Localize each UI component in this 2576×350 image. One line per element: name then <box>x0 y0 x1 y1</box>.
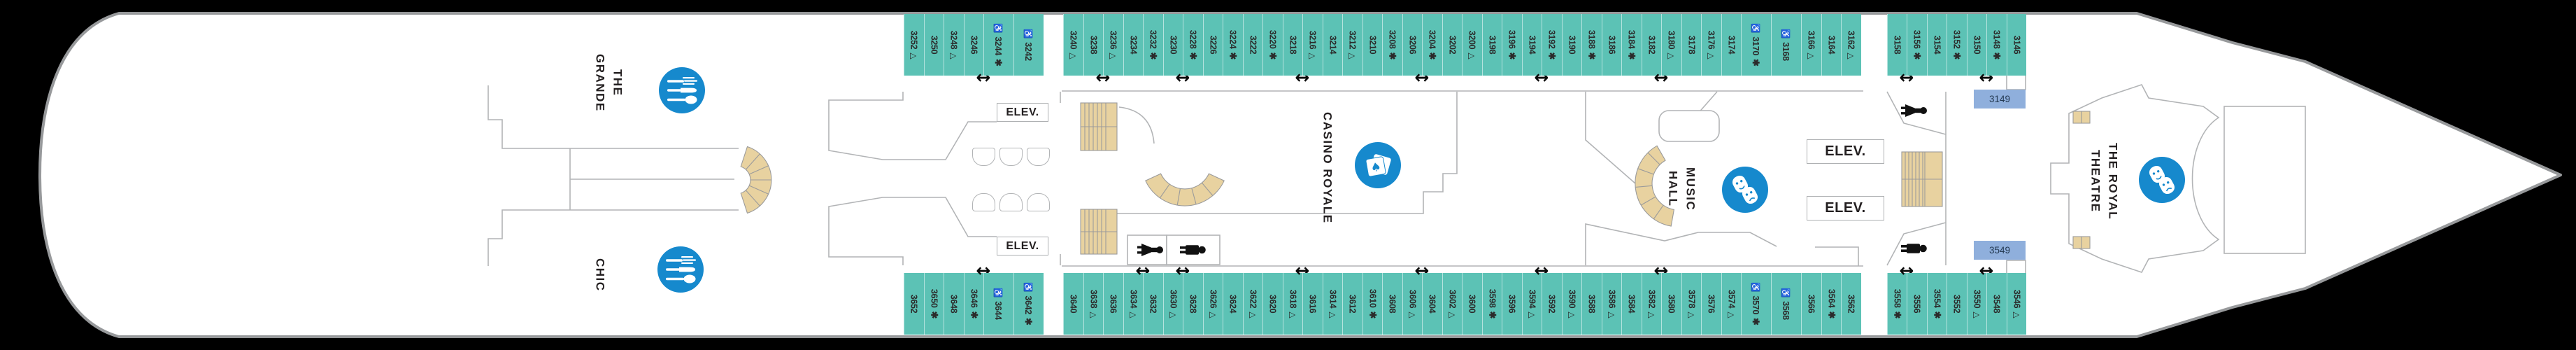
cabin-3214[interactable]: 3214 <box>1323 14 1343 76</box>
star-marker: ✱ <box>1931 311 1942 319</box>
cabin-3550[interactable]: 3550△ <box>1967 273 1987 335</box>
cabin-number: 3552 <box>1951 295 1961 314</box>
cabin-3190[interactable]: 3190 <box>1562 14 1582 76</box>
cabin-3174[interactable]: 3174 <box>1721 14 1742 76</box>
cabin-number: 3156 <box>1912 30 1921 49</box>
triangle-marker: △ <box>1527 311 1537 318</box>
cabin-3232[interactable]: 3232✱ <box>1143 14 1163 76</box>
cabin-3210[interactable]: 3210 <box>1362 14 1383 76</box>
cabin-3226[interactable]: 3226 <box>1203 14 1223 76</box>
cabin-3184[interactable]: 3184✱ <box>1621 14 1642 76</box>
cabin-3220[interactable]: 3220✱ <box>1262 14 1283 76</box>
cabin-3168[interactable]: ♿3168 <box>1771 14 1801 76</box>
cabin-number: 3170 <box>1751 36 1761 55</box>
cabin-number: 3158 <box>1892 36 1902 55</box>
triangle-marker: △ <box>2012 311 2021 318</box>
cabin-3216[interactable]: 3216△ <box>1302 14 1323 76</box>
cabin-number: 3606 <box>1407 290 1417 309</box>
cabin-3192[interactable]: 3192✱ <box>1542 14 1562 76</box>
cabin-3240[interactable]: 3240△ <box>1063 14 1083 76</box>
triangle-marker: △ <box>948 52 958 59</box>
cabin-number: 3632 <box>1148 295 1158 314</box>
wheelchair-accessible-icon: ♿ <box>1781 288 1791 297</box>
cabin-3614[interactable]: 3614△ <box>1323 273 1343 335</box>
cabin-3648[interactable]: 3648 <box>944 273 964 335</box>
cabin-number: 3618 <box>1288 290 1297 309</box>
cabin-number: 3626 <box>1208 290 1218 309</box>
triangle-marker: △ <box>1307 52 1317 59</box>
cabin-3570[interactable]: ♿3570✱ <box>1741 273 1771 335</box>
star-marker: ✱ <box>1386 52 1397 60</box>
triangle-marker: △ <box>1068 52 1078 59</box>
cabin-3154[interactable]: 3154 <box>1927 14 1947 76</box>
triangle-marker: △ <box>1806 52 1816 59</box>
cabin-3200[interactable]: 3200△ <box>1462 14 1482 76</box>
deck-plan: ♠ THE GRANDE CHIC CASINO ROYALE MUSIC HA… <box>0 0 2576 350</box>
wheelchair-accessible-icon: ♿ <box>1751 23 1761 33</box>
cabin-3608[interactable]: 3608 <box>1382 273 1402 335</box>
cabin-3612[interactable]: 3612 <box>1342 273 1362 335</box>
cabin-number: 3252 <box>909 31 918 50</box>
cabin-3558[interactable]: 3558✱ <box>1887 273 1907 335</box>
cabin-3586[interactable]: 3586△ <box>1602 273 1622 335</box>
cabin-number: 3190 <box>1567 36 1577 55</box>
cabin-number: 3204 <box>1427 30 1437 49</box>
cabin-3646[interactable]: 3646✱ <box>964 273 984 335</box>
cabin-number: 3648 <box>948 295 958 314</box>
cabin-3592[interactable]: 3592 <box>1542 273 1562 335</box>
cabin-number: 3236 <box>1108 31 1118 50</box>
triangle-marker: △ <box>1666 52 1676 59</box>
cabin-3602[interactable]: 3602△ <box>1442 273 1463 335</box>
cabin-number: 3226 <box>1208 36 1218 55</box>
star-marker: ✱ <box>1911 52 1922 60</box>
cabin-3566[interactable]: 3566 <box>1801 273 1821 335</box>
cabin-3248[interactable]: 3248△ <box>944 14 964 76</box>
cabin-number: 3248 <box>948 31 958 50</box>
cabin-number: 3234 <box>1128 36 1138 55</box>
cabin-number: 3162 <box>1846 31 1856 50</box>
cabin-number: 3176 <box>1706 31 1716 50</box>
cabin-number: 3240 <box>1068 31 1078 50</box>
cabin-number: 3216 <box>1307 31 1317 50</box>
wheelchair-accessible-icon: ♿ <box>1751 282 1761 292</box>
cabin-number: 3578 <box>1686 290 1696 309</box>
cabin-number: 3570 <box>1751 295 1761 314</box>
cabin-number: 3148 <box>1991 30 2001 49</box>
triangle-marker: △ <box>1972 311 1981 318</box>
cabin-number: 3622 <box>1248 290 1258 309</box>
cabin-number: 3150 <box>1972 36 1981 55</box>
triangle-marker: △ <box>1407 311 1417 318</box>
cabin-3624[interactable]: 3624 <box>1223 273 1243 335</box>
triangle-marker: △ <box>1686 311 1696 318</box>
cabin-3616[interactable]: 3616 <box>1302 273 1323 335</box>
cabin-3618[interactable]: 3618△ <box>1283 273 1303 335</box>
cabin-number: 3652 <box>909 295 918 314</box>
cabin-3548[interactable]: 3548 <box>1986 273 2007 335</box>
cabin-number: 3230 <box>1168 36 1178 55</box>
cabin-number: 3650 <box>929 289 939 308</box>
cabin-number: 3634 <box>1128 290 1138 309</box>
cabin-number: 3238 <box>1088 36 1098 55</box>
cabin-3580[interactable]: 3580 <box>1661 273 1681 335</box>
cabin-3242[interactable]: ♿3242 <box>1013 14 1044 76</box>
cabin-3582[interactable]: 3582△ <box>1642 273 1662 335</box>
cabin-3576[interactable]: 3576 <box>1701 273 1721 335</box>
cabin-3644[interactable]: ♿3644 <box>983 273 1013 335</box>
cabin-3212[interactable]: 3212△ <box>1342 14 1362 76</box>
star-marker: ✱ <box>1187 52 1198 60</box>
cabin-number: 3210 <box>1367 36 1377 55</box>
cabin-3236[interactable]: 3236△ <box>1103 14 1123 76</box>
cabin-number: 3568 <box>1781 301 1791 320</box>
cabin-3552[interactable]: 3552 <box>1947 273 1967 335</box>
cabin-number: 3624 <box>1227 295 1237 314</box>
triangle-marker: △ <box>1088 311 1098 318</box>
cabin-3196[interactable]: 3196✱ <box>1502 14 1522 76</box>
star-marker: ✱ <box>1586 52 1597 60</box>
wheelchair-accessible-icon: ♿ <box>994 288 1004 297</box>
cabin-number: 3200 <box>1467 31 1476 50</box>
cabin-number: 3188 <box>1586 30 1596 49</box>
cabin-3606[interactable]: 3606△ <box>1402 273 1423 335</box>
cabin-number: 3206 <box>1407 36 1417 55</box>
cabin-number: 3558 <box>1892 289 1902 308</box>
cabin-number: 3550 <box>1972 290 1981 309</box>
cabin-number: 3588 <box>1586 295 1596 314</box>
cabin-3146[interactable]: 3146 <box>2007 14 2027 76</box>
star-marker: ✱ <box>1227 52 1238 60</box>
cabin-number: 3608 <box>1387 295 1397 314</box>
cabin-number: 3250 <box>929 36 939 55</box>
triangle-marker: △ <box>1108 52 1118 59</box>
cabin-number: 3590 <box>1567 290 1577 309</box>
wheelchair-accessible-icon: ♿ <box>1024 282 1034 292</box>
star-marker: ✱ <box>993 59 1004 66</box>
cabin-3148[interactable]: 3148✱ <box>1986 14 2007 76</box>
cabin-3626[interactable]: 3626△ <box>1203 273 1223 335</box>
cabin-number: 3208 <box>1387 30 1397 49</box>
star-marker: ✱ <box>928 311 939 319</box>
cabin-number: 3620 <box>1267 295 1277 314</box>
cabin-3574[interactable]: 3574△ <box>1721 273 1742 335</box>
cabin-3622[interactable]: 3622△ <box>1243 273 1263 335</box>
cabin-number: 3548 <box>1991 295 2001 314</box>
triangle-marker: △ <box>1447 311 1457 318</box>
cabin-3222[interactable]: 3222 <box>1243 14 1263 76</box>
cabin-3180[interactable]: 3180△ <box>1661 14 1681 76</box>
cabin-3594[interactable]: 3594△ <box>1522 273 1542 335</box>
cabin-number: 3566 <box>1806 295 1816 314</box>
star-marker: ✱ <box>1891 311 1902 319</box>
star-marker: ✱ <box>1546 52 1557 60</box>
cabins-layer: 3252△32503248△3246↔♿3244✱♿32423240△3238↔… <box>0 0 2576 350</box>
cabin-number: 3600 <box>1467 295 1476 314</box>
cabin-number: 3556 <box>1912 295 1921 314</box>
cabin-3638[interactable]: 3638△ <box>1083 273 1104 335</box>
cabin-3610[interactable]: 3610✱ <box>1362 273 1383 335</box>
cabin-3224[interactable]: 3224✱ <box>1223 14 1243 76</box>
cabin-3250[interactable]: 3250 <box>924 14 944 76</box>
cabin-3652[interactable]: 3652 <box>904 273 924 335</box>
cabin-number: 3184 <box>1626 30 1636 49</box>
cabin-3176[interactable]: 3176△ <box>1701 14 1721 76</box>
cabin-3178[interactable]: 3178 <box>1681 14 1702 76</box>
cabin-number: 3180 <box>1666 31 1676 50</box>
cabin-3642[interactable]: ♿3642✱ <box>1013 273 1044 335</box>
cabin-3162[interactable]: 3162△ <box>1841 14 1861 76</box>
cabin-3636[interactable]: 3636 <box>1103 273 1123 335</box>
cabin-number: 3218 <box>1288 36 1297 55</box>
triangle-marker: △ <box>1567 311 1577 318</box>
cabin-number: 3614 <box>1328 290 1337 309</box>
cabin-3584[interactable]: 3584 <box>1621 273 1642 335</box>
cabin-number: 3594 <box>1527 290 1537 309</box>
star-marker: ✱ <box>1751 318 1762 325</box>
triangle-marker: △ <box>1208 311 1218 318</box>
cabin-3564[interactable]: 3564✱ <box>1821 273 1842 335</box>
triangle-marker: △ <box>1846 52 1856 59</box>
cabin-3198[interactable]: 3198 <box>1482 14 1502 76</box>
cabin-number: 3202 <box>1447 36 1457 55</box>
triangle-marker: △ <box>1288 311 1297 318</box>
cabin-3598[interactable]: 3598✱ <box>1482 273 1502 335</box>
cabin-number: 3646 <box>969 289 979 308</box>
wheelchair-accessible-icon: ♿ <box>994 23 1004 33</box>
cabin-number: 3174 <box>1726 36 1736 55</box>
triangle-marker: △ <box>1646 311 1656 318</box>
triangle-marker: △ <box>909 52 918 59</box>
cabin-3164[interactable]: 3164 <box>1821 14 1842 76</box>
cabin-number: 3244 <box>994 36 1004 55</box>
cabin-3152[interactable]: 3152✱ <box>1947 14 1967 76</box>
cabin-number: 3592 <box>1546 295 1556 314</box>
cabin-3554[interactable]: 3554✱ <box>1927 273 1947 335</box>
cabin-3630[interactable]: 3630△ <box>1163 273 1183 335</box>
cabin-number: 3222 <box>1248 36 1258 55</box>
triangle-marker: △ <box>1467 52 1476 59</box>
triangle-marker: △ <box>1347 52 1357 59</box>
cabin-3234[interactable]: 3234 <box>1123 14 1144 76</box>
cabin-3252[interactable]: 3252△ <box>904 14 924 76</box>
cabin-3166[interactable]: 3166△ <box>1801 14 1821 76</box>
cabin-number: 3178 <box>1686 36 1696 55</box>
cabin-number: 3630 <box>1168 290 1178 309</box>
cabin-3588[interactable]: 3588 <box>1581 273 1602 335</box>
cabin-number: 3220 <box>1267 30 1277 49</box>
cabin-3204[interactable]: 3204✱ <box>1422 14 1442 76</box>
cabin-3628[interactable]: 3628 <box>1183 273 1203 335</box>
cabin-number: 3152 <box>1951 30 1961 49</box>
triangle-marker: △ <box>1726 311 1736 318</box>
cabin-3186[interactable]: 3186 <box>1602 14 1622 76</box>
cabin-number: 3196 <box>1507 30 1516 49</box>
cabin-3650[interactable]: 3650✱ <box>924 273 944 335</box>
cabin-number: 3638 <box>1088 290 1098 309</box>
cabin-3578[interactable]: 3578△ <box>1681 273 1702 335</box>
cabin-number: 3154 <box>1932 36 1942 55</box>
cabin-number: 3164 <box>1826 36 1836 55</box>
cabin-3604[interactable]: 3604 <box>1422 273 1442 335</box>
star-marker: ✱ <box>1426 52 1437 60</box>
cabin-number: 3576 <box>1706 295 1716 314</box>
cabin-3546[interactable]: 3546△ <box>2007 273 2027 335</box>
cabin-number: 3166 <box>1806 31 1816 50</box>
cabin-number: 3602 <box>1447 290 1457 309</box>
star-marker: ✱ <box>1267 52 1278 60</box>
cabin-number: 3146 <box>2012 36 2021 55</box>
star-marker: ✱ <box>1486 311 1497 319</box>
cabin-number: 3168 <box>1781 42 1791 61</box>
cabin-number: 3598 <box>1487 289 1497 308</box>
star-marker: ✱ <box>968 311 979 319</box>
cabin-number: 3564 <box>1826 289 1836 308</box>
cabin-3228[interactable]: 3228✱ <box>1183 14 1203 76</box>
cabin-3620[interactable]: 3620 <box>1262 273 1283 335</box>
cabin-number: 3182 <box>1646 36 1656 55</box>
cabin-3600[interactable]: 3600 <box>1462 273 1482 335</box>
cabin-3188[interactable]: 3188✱ <box>1581 14 1602 76</box>
cabin-number: 3224 <box>1227 30 1237 49</box>
cabin-3632[interactable]: 3632 <box>1143 273 1163 335</box>
cabin-number: 3640 <box>1068 295 1078 314</box>
triangle-marker: △ <box>1607 311 1616 318</box>
cabin-3634[interactable]: 3634△ <box>1123 273 1144 335</box>
triangle-marker: △ <box>1128 311 1138 318</box>
star-marker: ✱ <box>1147 52 1158 60</box>
cabin-number: 3574 <box>1726 290 1736 309</box>
cabin-3208[interactable]: 3208✱ <box>1382 14 1402 76</box>
triangle-marker: △ <box>1328 311 1337 318</box>
star-marker: ✱ <box>1991 52 2002 60</box>
cabin-number: 3584 <box>1626 295 1636 314</box>
star-marker: ✱ <box>1826 311 1837 319</box>
cabin-number: 3644 <box>994 301 1004 320</box>
cabin-number: 3610 <box>1367 289 1377 308</box>
wheelchair-accessible-icon: ♿ <box>1024 29 1034 38</box>
wheelchair-accessible-icon: ♿ <box>1781 29 1791 38</box>
cabin-number: 3214 <box>1328 36 1337 55</box>
cabin-number: 3198 <box>1487 36 1497 55</box>
cabin-number: 3228 <box>1188 30 1197 49</box>
cabin-number: 3194 <box>1527 36 1537 55</box>
cabin-number: 3596 <box>1507 295 1516 314</box>
cabin-3156[interactable]: 3156✱ <box>1907 14 1927 76</box>
cabin-number: 3242 <box>1024 42 1034 61</box>
cabin-number: 3582 <box>1646 290 1656 309</box>
cabin-number: 3232 <box>1148 30 1158 49</box>
cabin-number: 3580 <box>1666 295 1676 314</box>
cabin-number: 3642 <box>1024 295 1034 314</box>
cabin-3170[interactable]: ♿3170✱ <box>1741 14 1771 76</box>
star-marker: ✱ <box>1367 311 1378 319</box>
cabin-3590[interactable]: 3590△ <box>1562 273 1582 335</box>
cabin-3568[interactable]: ♿3568 <box>1771 273 1801 335</box>
cabin-3202[interactable]: 3202 <box>1442 14 1463 76</box>
cabin-number: 3246 <box>969 36 979 55</box>
cabin-number: 3546 <box>2012 290 2021 309</box>
star-marker: ✱ <box>1951 52 1962 60</box>
cabin-number: 3212 <box>1347 31 1357 50</box>
cabin-number: 3192 <box>1546 30 1556 49</box>
cabin-3640[interactable]: 3640 <box>1063 273 1083 335</box>
cabin-3562[interactable]: 3562 <box>1841 273 1861 335</box>
cabin-number: 3586 <box>1607 290 1616 309</box>
cabin-3596[interactable]: 3596 <box>1502 273 1522 335</box>
triangle-marker: △ <box>1706 52 1716 59</box>
cabin-number: 3604 <box>1427 295 1437 314</box>
cabin-number: 3628 <box>1188 295 1197 314</box>
star-marker: ✱ <box>1023 318 1034 325</box>
cabin-number: 3554 <box>1932 289 1942 308</box>
triangle-marker: △ <box>1168 311 1178 318</box>
star-marker: ✱ <box>1506 52 1517 60</box>
cabin-3556[interactable]: 3556 <box>1907 273 1927 335</box>
triangle-marker: △ <box>1248 311 1258 318</box>
cabin-number: 3616 <box>1307 295 1317 314</box>
cabin-number: 3636 <box>1108 295 1118 314</box>
cabin-number: 3562 <box>1846 295 1856 314</box>
star-marker: ✱ <box>1751 59 1762 66</box>
cabin-number: 3186 <box>1607 36 1616 55</box>
cabin-number: 3612 <box>1347 295 1357 314</box>
star-marker: ✱ <box>1625 52 1637 60</box>
cabin-3244[interactable]: ♿3244✱ <box>983 14 1013 76</box>
